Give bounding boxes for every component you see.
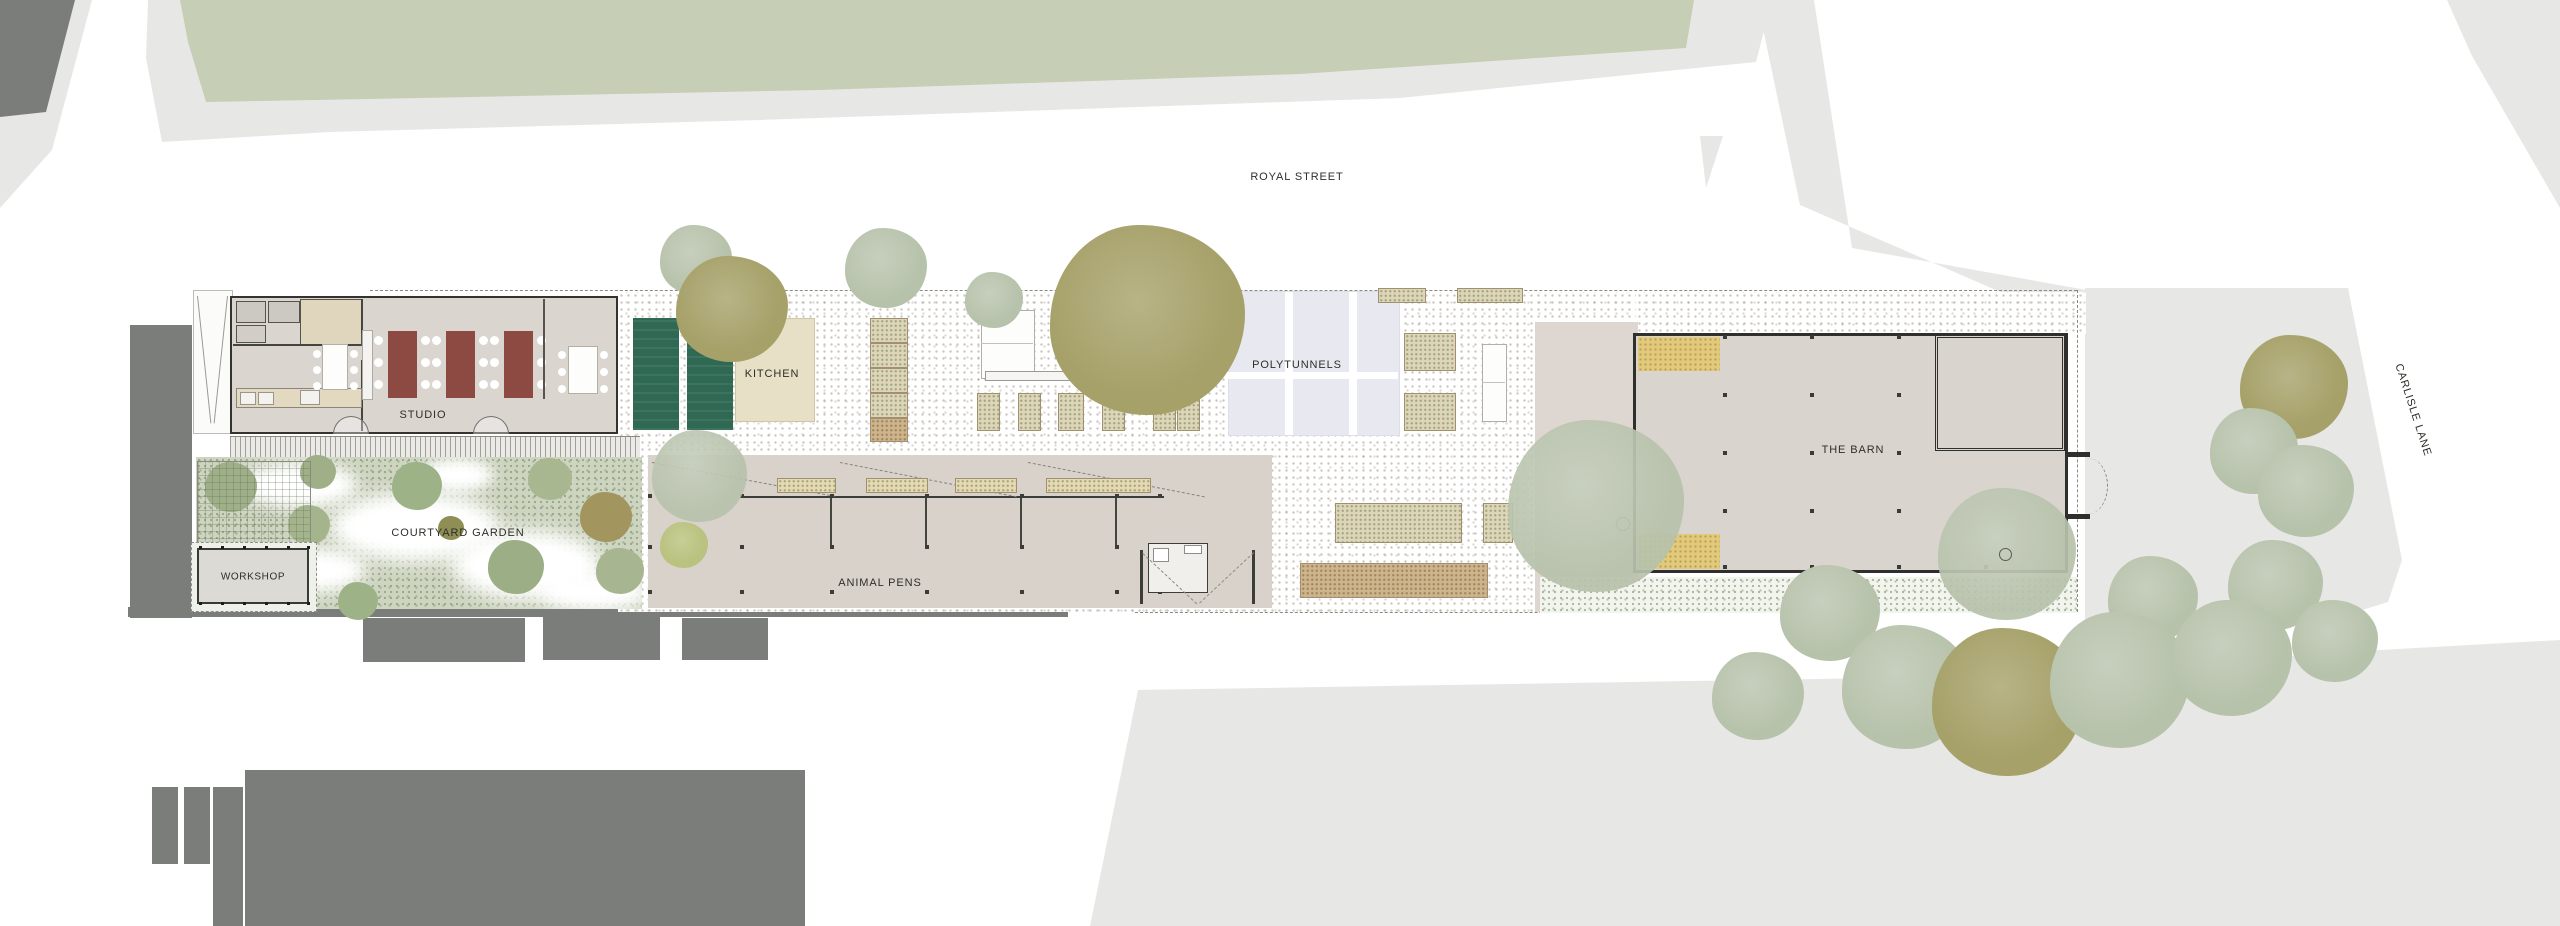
raised-bed — [870, 343, 908, 368]
raised-bed — [870, 318, 908, 343]
pens-sign-strip-2 — [866, 478, 928, 493]
pens-post-line-3 — [1020, 497, 1022, 549]
pens-sign-strip-4 — [1046, 478, 1151, 493]
studio-table-east — [568, 346, 598, 394]
pens-post-line-2 — [925, 497, 927, 549]
studio-table-red-1 — [388, 331, 417, 398]
studio-table-west — [322, 344, 348, 390]
studio-table-red-3 — [504, 331, 533, 398]
raised-bed-double — [1404, 393, 1456, 431]
workshop-posts — [199, 546, 202, 549]
studio-table-west-chairs — [313, 350, 321, 358]
studio-screen — [362, 330, 373, 400]
polytunnels-gap — [1228, 372, 1398, 379]
studio-wc-room-3 — [236, 325, 266, 343]
barn-door-stub-bottom — [2068, 514, 2090, 519]
gate-post-left — [1140, 550, 1143, 604]
garden-shrub-olive — [580, 492, 632, 542]
context-building-big-wing — [268, 858, 330, 926]
garden-shrub — [528, 458, 572, 500]
studio-table-red-2 — [446, 331, 475, 398]
site-gravel-barn-north — [1636, 292, 2086, 334]
boundary-bed-2 — [1457, 288, 1523, 303]
pens-store-fixture-1 — [1153, 548, 1169, 562]
gate-post-right — [1252, 550, 1255, 604]
raised-bed — [870, 368, 908, 393]
studio-island — [300, 390, 320, 405]
raised-bed — [1018, 393, 1041, 431]
garden-table-2 — [1482, 344, 1507, 422]
studio-appliance-2 — [258, 392, 274, 405]
barn-label: THE BARN — [1822, 444, 1885, 456]
garden-shrub — [488, 540, 544, 594]
studio-wall-v1 — [361, 299, 363, 333]
garden-shrub — [392, 462, 442, 510]
studio-wc-room-2 — [268, 301, 300, 323]
context-building-b — [543, 617, 660, 660]
studio-lobby — [300, 299, 362, 346]
studio-label: STUDIO — [400, 409, 447, 421]
garden-trellis — [197, 461, 311, 547]
masterplan-canvas: ROYAL STREET CARLISLE LANE STUDIO — [0, 0, 2560, 926]
garden-shrub — [338, 582, 378, 620]
garden-shrub — [596, 548, 644, 594]
context-terrace-1 — [152, 787, 178, 864]
pens-sign-strip-1 — [777, 478, 836, 493]
barn-inner-room — [1935, 335, 2065, 451]
barn-hay-north — [1638, 337, 1720, 371]
barn-columns — [1723, 335, 1727, 339]
site-boundary-east — [2077, 290, 2078, 612]
pens-post-line-4 — [1115, 497, 1117, 549]
raised-bed — [870, 393, 908, 418]
raised-bed — [870, 418, 908, 442]
compost-bays — [1300, 563, 1488, 598]
barn-door-stub-top — [2068, 452, 2090, 457]
pens-posts — [648, 494, 652, 498]
garden-table-1-divider — [981, 343, 1033, 344]
context-building-c — [682, 618, 768, 660]
studio-table-red-1-chairs — [374, 336, 383, 345]
raised-bed-row — [1335, 503, 1462, 543]
boundary-bed-1 — [1378, 288, 1426, 303]
studio-deck — [230, 436, 640, 459]
pens-post-line-1 — [830, 497, 832, 549]
studio-appliance-1 — [240, 392, 256, 405]
polytunnels-label: POLYTUNNELS — [1252, 359, 1342, 371]
pens-beam — [740, 496, 1164, 498]
raised-bed — [977, 393, 1000, 431]
tree-marker-circle — [1999, 548, 2012, 561]
workshop-label: WORKSHOP — [221, 572, 285, 583]
context-terrace-3 — [213, 787, 243, 926]
carlisle-lane-label: CARLISLE LANE — [2392, 362, 2433, 458]
studio-table-red-3-chairs — [490, 336, 499, 345]
green-panel-1 — [633, 318, 679, 430]
context-building-west — [130, 325, 192, 618]
kitchen-label: KITCHEN — [745, 368, 800, 380]
animal-pens-label: ANIMAL PENS — [838, 577, 921, 589]
context-building-a — [363, 618, 525, 662]
raised-bed-double — [1404, 333, 1456, 371]
garden-table-2-divider — [1482, 382, 1505, 383]
raised-bed — [1058, 393, 1084, 431]
context-terrace-2 — [184, 787, 210, 864]
pens-store-fixture-2 — [1184, 545, 1202, 554]
studio-table-red-2-chairs — [432, 336, 441, 345]
royal-street-label: ROYAL STREET — [1250, 171, 1343, 183]
studio-wall-v3 — [543, 299, 545, 399]
barn-door-swing — [2069, 458, 2108, 514]
courtyard-garden-label: COURTYARD GARDEN — [391, 527, 524, 539]
pens-sign-strip-3 — [955, 478, 1017, 493]
studio-wc-room-1 — [236, 301, 266, 323]
studio-table-east-chairs — [558, 351, 566, 359]
